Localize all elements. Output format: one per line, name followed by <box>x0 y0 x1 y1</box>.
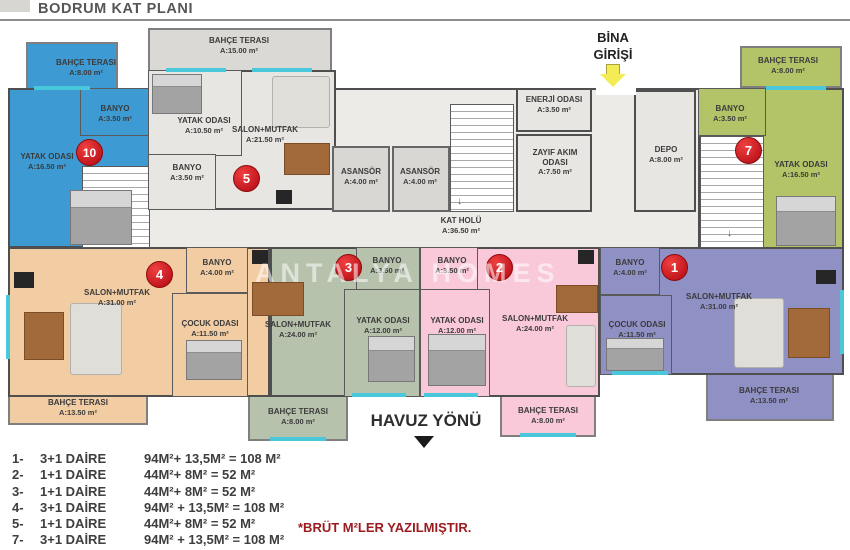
bed-icon <box>606 338 664 371</box>
room-label-u2-salon: SALON+MUTFAK A:24.00 m² <box>485 314 585 333</box>
window <box>6 295 10 359</box>
stove-icon <box>276 190 292 204</box>
room-label-u4-salon: SALON+MUTFAK A:31.00 m² <box>57 288 177 307</box>
window <box>840 290 844 354</box>
room-label-u4-terrace: BAHÇE TERASI A:13.50 m² <box>28 398 128 417</box>
pool-arrow-icon <box>414 436 434 448</box>
window <box>352 393 406 397</box>
room-label-u5-terrace: BAHÇE TERASI A:15.00 m² <box>179 36 299 55</box>
legend-row: 2- 1+1 DAİRE 44M²+ 8M² = 52 M² <box>12 467 284 483</box>
room-label-u2-terrace: BAHÇE TERASI A:8.00 m² <box>502 406 594 425</box>
room-label-u1-cocuk: ÇOCUK ODASI A:11.50 m² <box>601 320 673 339</box>
bed-icon <box>152 74 202 114</box>
dining-table-icon <box>24 312 64 360</box>
room-label-u4-banyo: BANYO A:4.00 m² <box>187 258 247 277</box>
stove-icon <box>816 270 836 284</box>
stove-icon <box>252 250 268 264</box>
stairs-arrow-icon: ↓ <box>457 196 462 207</box>
room-label-u5-banyo: BANYO A:3.50 m² <box>152 163 222 182</box>
dining-table-icon <box>284 143 330 175</box>
unit-badge-2: 2 <box>486 254 513 281</box>
bed-icon <box>776 196 836 246</box>
stairs-arrow-icon: ↓ <box>727 228 732 239</box>
room-label-u7-terrace: BAHÇE TERASI A:8.00 m² <box>743 56 833 75</box>
room-label-u10-yatak: YATAK ODASI A:16.50 m² <box>10 152 84 171</box>
legend-row: 4- 3+1 DAİRE 94M² + 13,5M² = 108 M² <box>12 500 284 516</box>
entrance-opening <box>596 86 636 95</box>
unit-badge-1: 1 <box>661 254 688 281</box>
floor-plan-page: BODRUM KAT PLANI ↓ ↓ <box>0 0 850 550</box>
legend-row: 3- 1+1 DAİRE 44M²+ 8M² = 52 M² <box>12 484 284 500</box>
stove-icon <box>14 272 34 288</box>
room-label-u2-yatak: YATAK ODASI A:12.00 m² <box>422 316 492 335</box>
building-entrance-label: BİNA GİRİŞİ <box>580 30 646 64</box>
window <box>252 68 312 72</box>
room-label-u3-terrace: BAHÇE TERASI A:8.00 m² <box>252 407 344 426</box>
window <box>766 86 826 90</box>
dining-table-icon <box>788 308 830 358</box>
window <box>612 371 668 375</box>
dining-table-icon <box>556 285 598 313</box>
room-label-u1-banyo: BANYO A:4.00 m² <box>600 258 660 277</box>
window <box>270 437 326 441</box>
room-label-elevator-1: ASANSÖR A:4.00 m² <box>333 167 389 186</box>
unit-badge-7: 7 <box>735 137 762 164</box>
window <box>424 393 478 397</box>
footnote: *BRÜT M²LER YAZILMIŞTIR. <box>298 520 471 535</box>
room-label-elevator-2: ASANSÖR A:4.00 m² <box>392 167 448 186</box>
stove-icon <box>578 250 594 264</box>
unit-badge-3: 3 <box>335 254 362 281</box>
unit-badge-5: 5 <box>233 165 260 192</box>
room-label-storage: DEPO A:8.00 m² <box>636 145 696 164</box>
room-label-u1-terrace: BAHÇE TERASI A:13.50 m² <box>719 386 819 405</box>
pool-direction-label: HAVUZ YÖNÜ <box>370 411 482 431</box>
legend-row: 5- 1+1 DAİRE 44M²+ 8M² = 52 M² <box>12 516 284 532</box>
bed-icon <box>186 340 242 380</box>
page-title: BODRUM KAT PLANI <box>38 1 193 17</box>
room-label-u1-salon: SALON+MUTFAK A:31.00 m² <box>669 292 769 311</box>
room-label-u3-salon: SALON+MUTFAK A:24.00 m² <box>248 320 348 339</box>
room-label-u10-terrace: BAHÇE TERASI A:8.00 m² <box>36 58 136 77</box>
room-label-u5-salon: SALON+MUTFAK A:21.50 m² <box>217 125 313 144</box>
room-label-u10-banyo: BANYO A:3.50 m² <box>84 104 146 123</box>
room-label-u7-banyo: BANYO A:3.50 m² <box>699 104 761 123</box>
dining-table-icon <box>252 282 304 316</box>
room-label-u7-yatak: YATAK ODASI A:16.50 m² <box>765 160 837 179</box>
bed-icon <box>70 190 132 245</box>
window <box>34 86 90 90</box>
sofa-icon <box>566 325 596 387</box>
room-label-low-current: ZAYIF AKIM ODASI A:7.50 m² <box>519 148 591 176</box>
sofa-icon <box>272 76 330 128</box>
window <box>520 433 576 437</box>
room-label-energy: ENERJİ ODASI A:3.50 m² <box>518 95 590 114</box>
window <box>166 68 226 72</box>
unit-badge-10: 10 <box>76 139 103 166</box>
corner-box <box>0 0 30 12</box>
sofa-icon <box>70 303 122 375</box>
room-label-u2-banyo: BANYO A:3.50 m² <box>422 256 482 275</box>
legend-row: 1- 3+1 DAİRE 94M²+ 13,5M² = 108 M² <box>12 451 284 467</box>
room-label-u4-cocuk: ÇOCUK ODASI A:11.50 m² <box>174 319 246 338</box>
bed-icon <box>368 336 415 382</box>
room-label-u3-yatak: YATAK ODASI A:12.00 m² <box>346 316 420 335</box>
room-label-hall: KAT HOLÜ A:36.50 m² <box>421 216 501 235</box>
title-underline <box>0 19 850 21</box>
unit-badge-4: 4 <box>146 261 173 288</box>
bed-icon <box>428 334 486 386</box>
legend: 1- 3+1 DAİRE 94M²+ 13,5M² = 108 M² 2- 1+… <box>12 451 284 549</box>
room-label-u3-banyo: BANYO A:3.50 m² <box>356 256 418 275</box>
legend-row: 7- 3+1 DAİRE 94M² + 13,5M² = 108 M² <box>12 532 284 548</box>
entrance-arrow-icon <box>600 64 626 87</box>
